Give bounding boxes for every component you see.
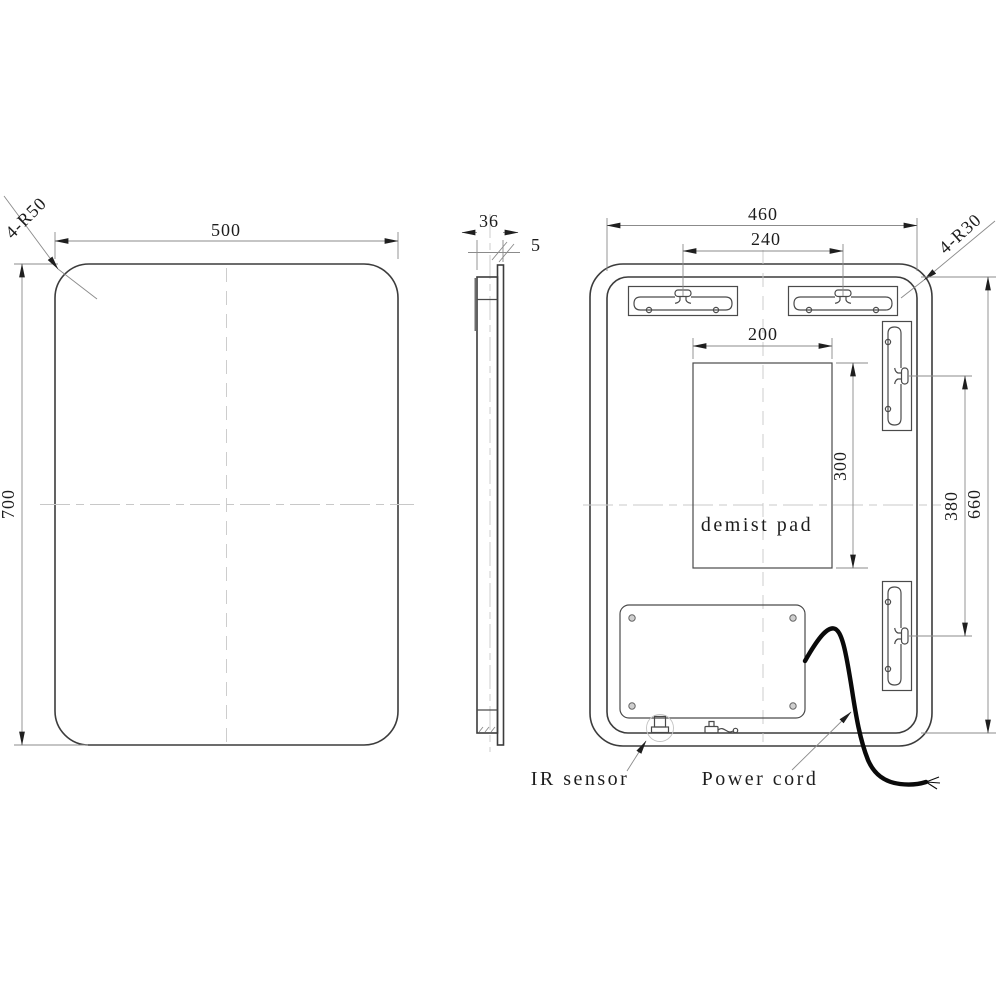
technical-drawing-page: 500 700 4-R50 36 (0, 0, 1000, 1000)
side-view: 36 5 (462, 211, 541, 752)
demist-pad-label: demist pad (701, 514, 813, 536)
mounting-bracket-right-bottom (883, 582, 912, 691)
dim-back-corner-radius: 4-R30 (901, 209, 995, 298)
bracket-span-label: 240 (751, 229, 781, 249)
control-box (620, 605, 805, 718)
side-body-profile (477, 277, 498, 733)
side-glass-profile (498, 265, 504, 745)
pad-height-label: 300 (830, 451, 850, 481)
control-box-outline (620, 605, 805, 718)
power-connector (705, 722, 738, 734)
mounting-bracket-right-top (883, 322, 912, 431)
keyhole-span-label: 380 (941, 491, 961, 521)
glass-thickness-label: 5 (531, 235, 541, 255)
ir-sensor-base (652, 727, 669, 733)
front-height-label: 700 (0, 489, 18, 519)
dim-pad-width: 200 (693, 324, 832, 359)
back-height-label: 660 (964, 489, 984, 519)
pad-width-label: 200 (748, 324, 778, 344)
demist-pad (693, 363, 832, 568)
screw-icon (790, 615, 796, 621)
back-width-label: 460 (748, 204, 778, 224)
power-cord-callout: Power cord (702, 712, 851, 790)
ir-sensor-callout: IR sensor (531, 741, 646, 790)
ir-sensor-label: IR sensor (531, 768, 630, 790)
mirror-technical-drawing: 500 700 4-R50 36 (0, 0, 1000, 1000)
back-view: 460 240 4-R30 demist pad 200 (531, 204, 996, 790)
dim-front-corner-radius: 4-R50 (1, 193, 97, 299)
power-cord (805, 628, 940, 789)
side-hatch (479, 727, 495, 732)
dim-pad-height: 300 (830, 363, 868, 568)
dim-front-width: 500 (55, 220, 398, 259)
screw-icon (629, 615, 635, 621)
dim-glass-thickness: 5 (468, 235, 541, 262)
screw-icon (790, 703, 796, 709)
screw-icon (629, 703, 635, 709)
front-view: 500 700 4-R50 (0, 193, 414, 745)
front-width-label: 500 (211, 220, 241, 240)
front-corner-radius-label: 4-R50 (1, 193, 50, 242)
side-thickness-label: 36 (479, 211, 499, 231)
power-cord-label: Power cord (702, 768, 819, 790)
